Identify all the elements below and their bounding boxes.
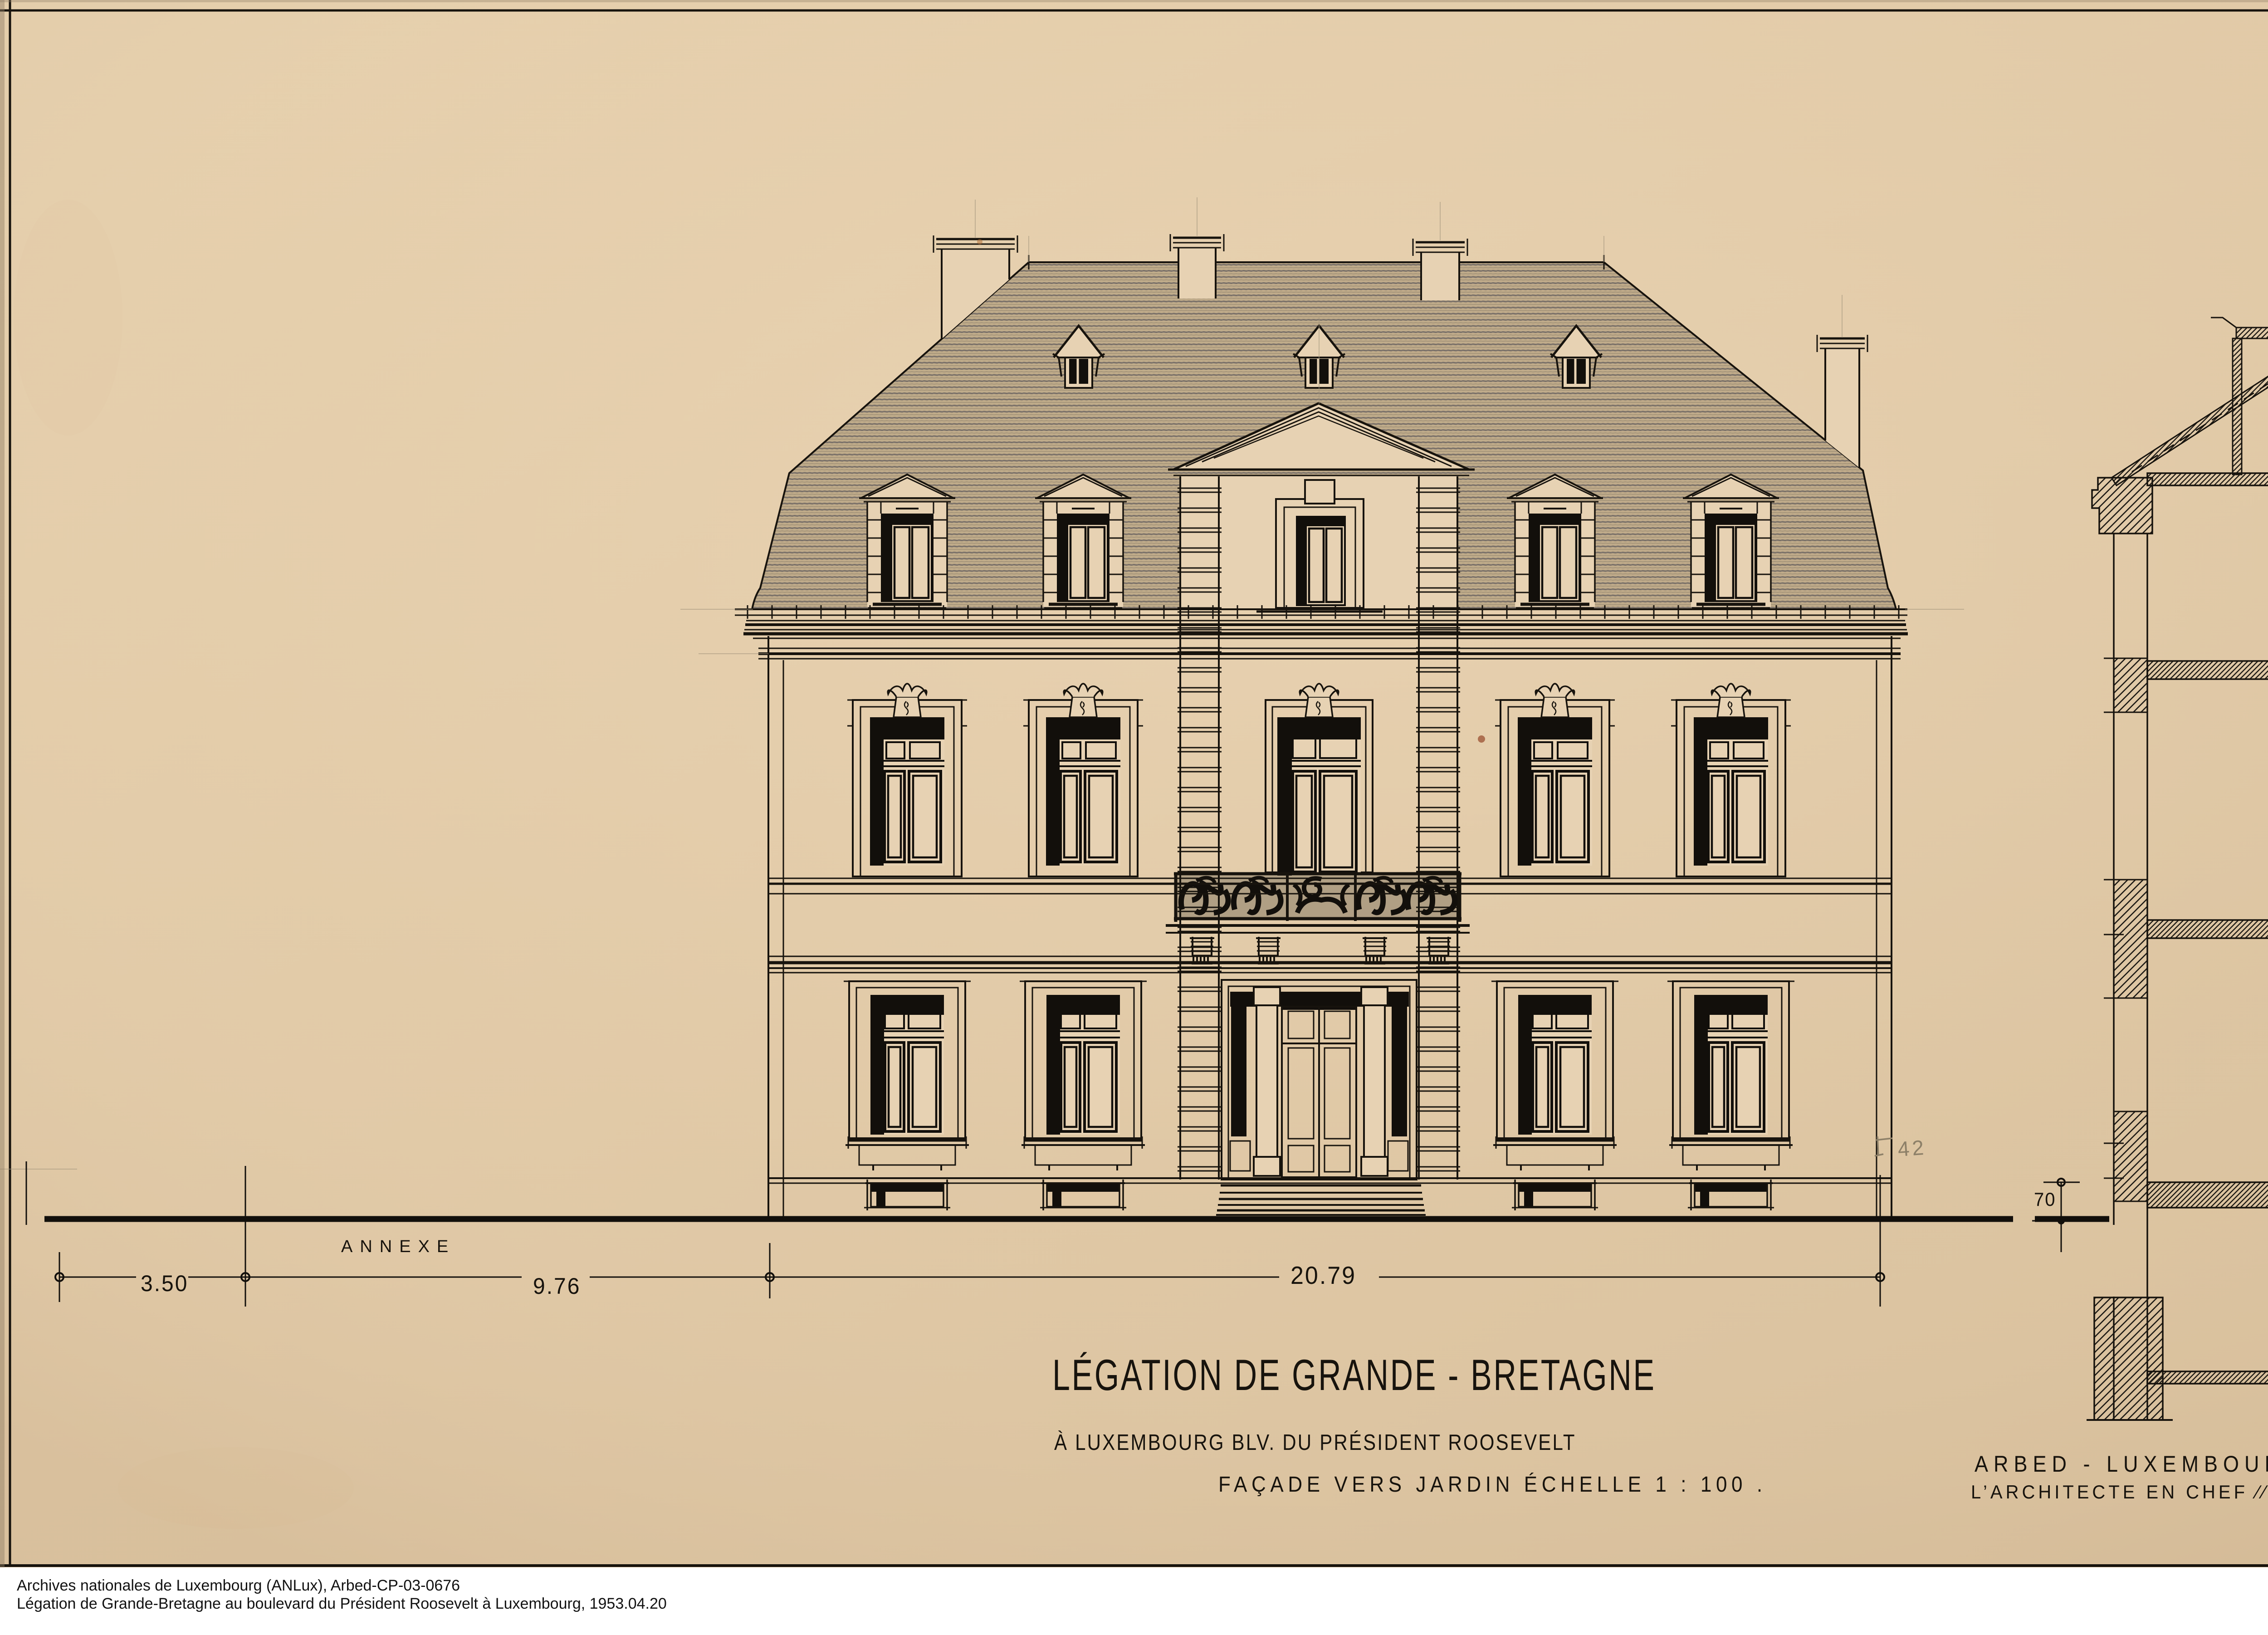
svg-text:À LUXEMBOURG BLV. DU PRÉSIDENT: À LUXEMBOURG BLV. DU PRÉSIDENT ROOSEVELT <box>1054 1429 1576 1455</box>
svg-text:ANNEXE: ANNEXE <box>341 1237 455 1256</box>
svg-text:9.76: 9.76 <box>533 1273 581 1299</box>
svg-text:ARBED - LUXEMBOURG, LE 20. 4.: ARBED - LUXEMBOURG, LE 20. 4. 53 <box>1975 1452 2268 1477</box>
svg-text:70: 70 <box>2034 1189 2056 1210</box>
svg-text:FAÇADE VERS JARDIN ÉCHELLE 1 :: FAÇADE VERS JARDIN ÉCHELLE 1 : 100 . <box>1218 1472 1767 1496</box>
svg-text:20.79: 20.79 <box>1290 1262 1356 1289</box>
svg-text:3.50: 3.50 <box>141 1271 188 1296</box>
svg-text:L’ARCHITECTE EN CHEF ⁄⁄: L’ARCHITECTE EN CHEF ⁄⁄ <box>1971 1481 2268 1503</box>
svg-text:LÉGATION DE GRANDE - BRETAGNE: LÉGATION DE GRANDE - BRETAGNE <box>1052 1351 1656 1400</box>
svg-text:Archives nationales de Luxembo: Archives nationales de Luxembourg (ANLux… <box>17 1577 460 1594</box>
svg-text:Légation de Grande-Bretagne au: Légation de Grande-Bretagne au boulevard… <box>17 1595 667 1612</box>
svg-text:42: 42 <box>1897 1136 1927 1161</box>
